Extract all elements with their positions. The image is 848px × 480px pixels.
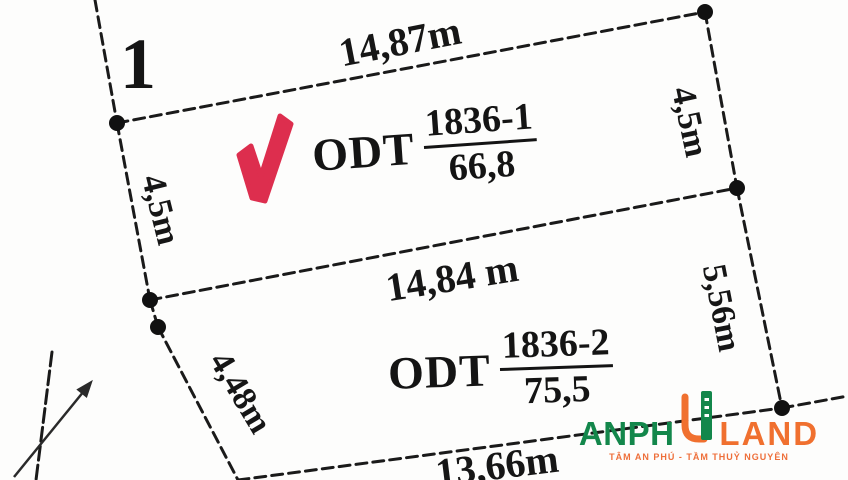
anphu-u-building-icon [677,389,717,450]
node [729,180,745,196]
node [150,319,166,335]
logo-wordmark: ANPH LAND [563,389,835,449]
logo-text-anph: ANPH [579,419,675,449]
node [142,292,158,308]
land-use-code: ODT [310,122,416,182]
direction-arrow-icon [14,381,92,477]
logo-tagline: TÂM AN PHÚ - TẦM THUỶ NGUYÊN [563,452,835,462]
parcel-number: 1836-1 [421,96,538,149]
anphu-land-logo: ANPH LAND TÂM AN PHÚ - TẦM THUỶ NGUYÊN [563,389,835,462]
node [697,4,713,20]
parcel-number: 1836-2 [498,322,613,371]
node [109,115,125,131]
parcel-label-1836-1: ODT 1836-1 66,8 [309,96,540,199]
boundary-right-upper [705,12,737,188]
logo-text-land: LAND [719,419,819,449]
cadastral-map-canvas: 1 14,87m 4,5m 4,5m 14,84 m 4,48m 5,56m 1… [0,0,848,480]
parcel-number-area-fraction: 1836-1 66,8 [421,96,540,191]
point-label-1: 1 [120,28,156,100]
red-checkmark-icon [239,116,291,201]
boundary-entry-top-left [95,0,117,123]
land-use-code: ODT [387,343,491,400]
neighbor-boundary-line [36,352,52,480]
boundary-right-lower [737,188,782,408]
parcel-area: 66,8 [424,141,540,191]
